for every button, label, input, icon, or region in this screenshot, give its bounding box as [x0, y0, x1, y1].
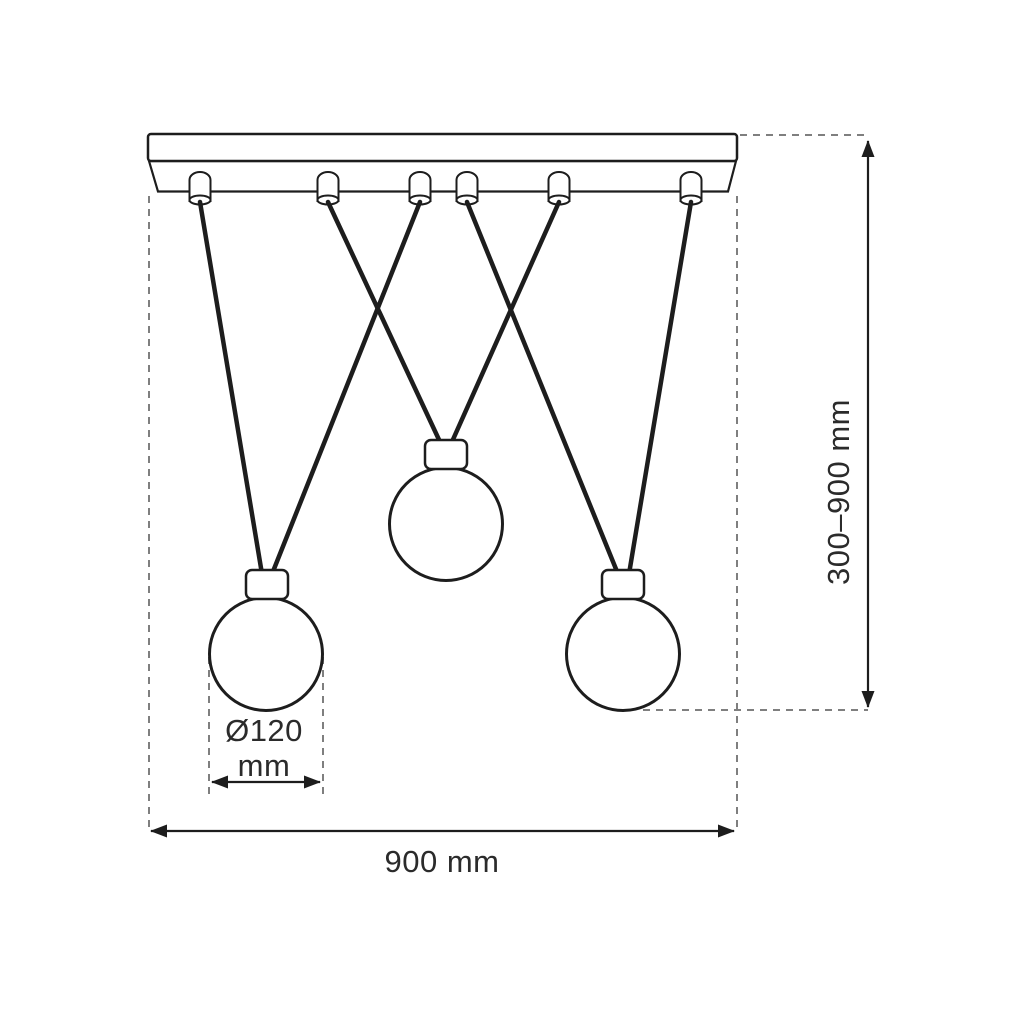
globe-shade-left [210, 598, 323, 711]
globe-shade-right [567, 598, 680, 711]
bar-width-label: 900 mm [385, 844, 500, 879]
ceiling-mount [148, 134, 737, 192]
lamp-socket-right [602, 570, 644, 599]
suspension-cord [451, 202, 559, 444]
globe-shade-middle [390, 468, 503, 581]
technical-drawing-canvas: 300–900 mm 900 mm Ø120 mm [0, 0, 1024, 1024]
suspension-cord [328, 202, 441, 444]
cord-grommet [318, 172, 339, 205]
cord-grommet [190, 172, 211, 205]
lamp-socket-left [246, 570, 288, 599]
lamp-globes [210, 440, 680, 711]
suspension-cord [200, 202, 262, 574]
diameter-value-label: Ø120 [225, 713, 303, 748]
cord-grommet [549, 172, 570, 205]
canopy-trapezoid [149, 161, 736, 192]
suspension-cord [629, 202, 691, 574]
lamp-socket-middle [425, 440, 467, 469]
cord-grommet [410, 172, 431, 205]
diameter-unit-label: mm [238, 748, 291, 783]
cord-grommet [681, 172, 702, 205]
mount-bar [148, 134, 737, 161]
pendant-lamp-diagram: 300–900 mm 900 mm Ø120 mm [0, 0, 1024, 1024]
height-range-label: 300–900 mm [821, 399, 856, 585]
cord-grommet [457, 172, 478, 205]
